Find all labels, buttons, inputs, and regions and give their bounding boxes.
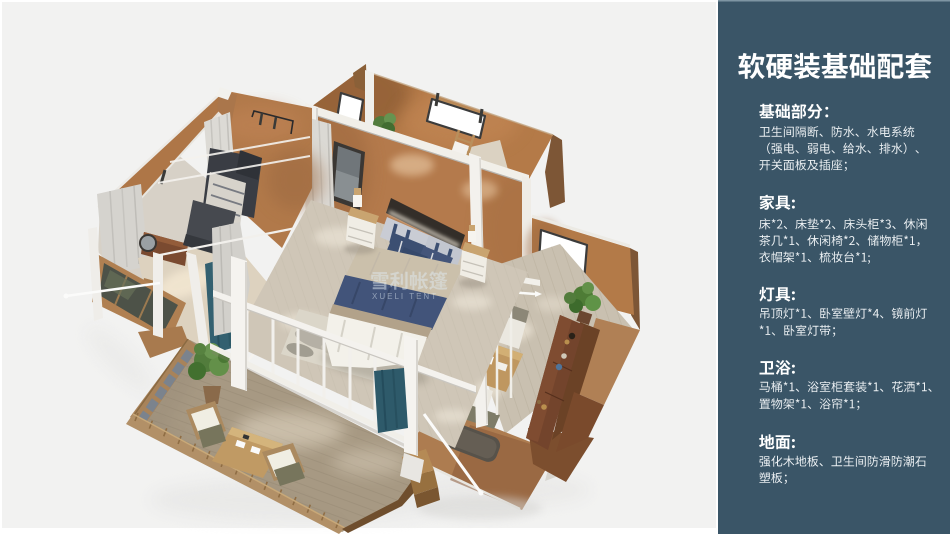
svg-text:XUELI TENT: XUELI TENT	[372, 292, 438, 301]
